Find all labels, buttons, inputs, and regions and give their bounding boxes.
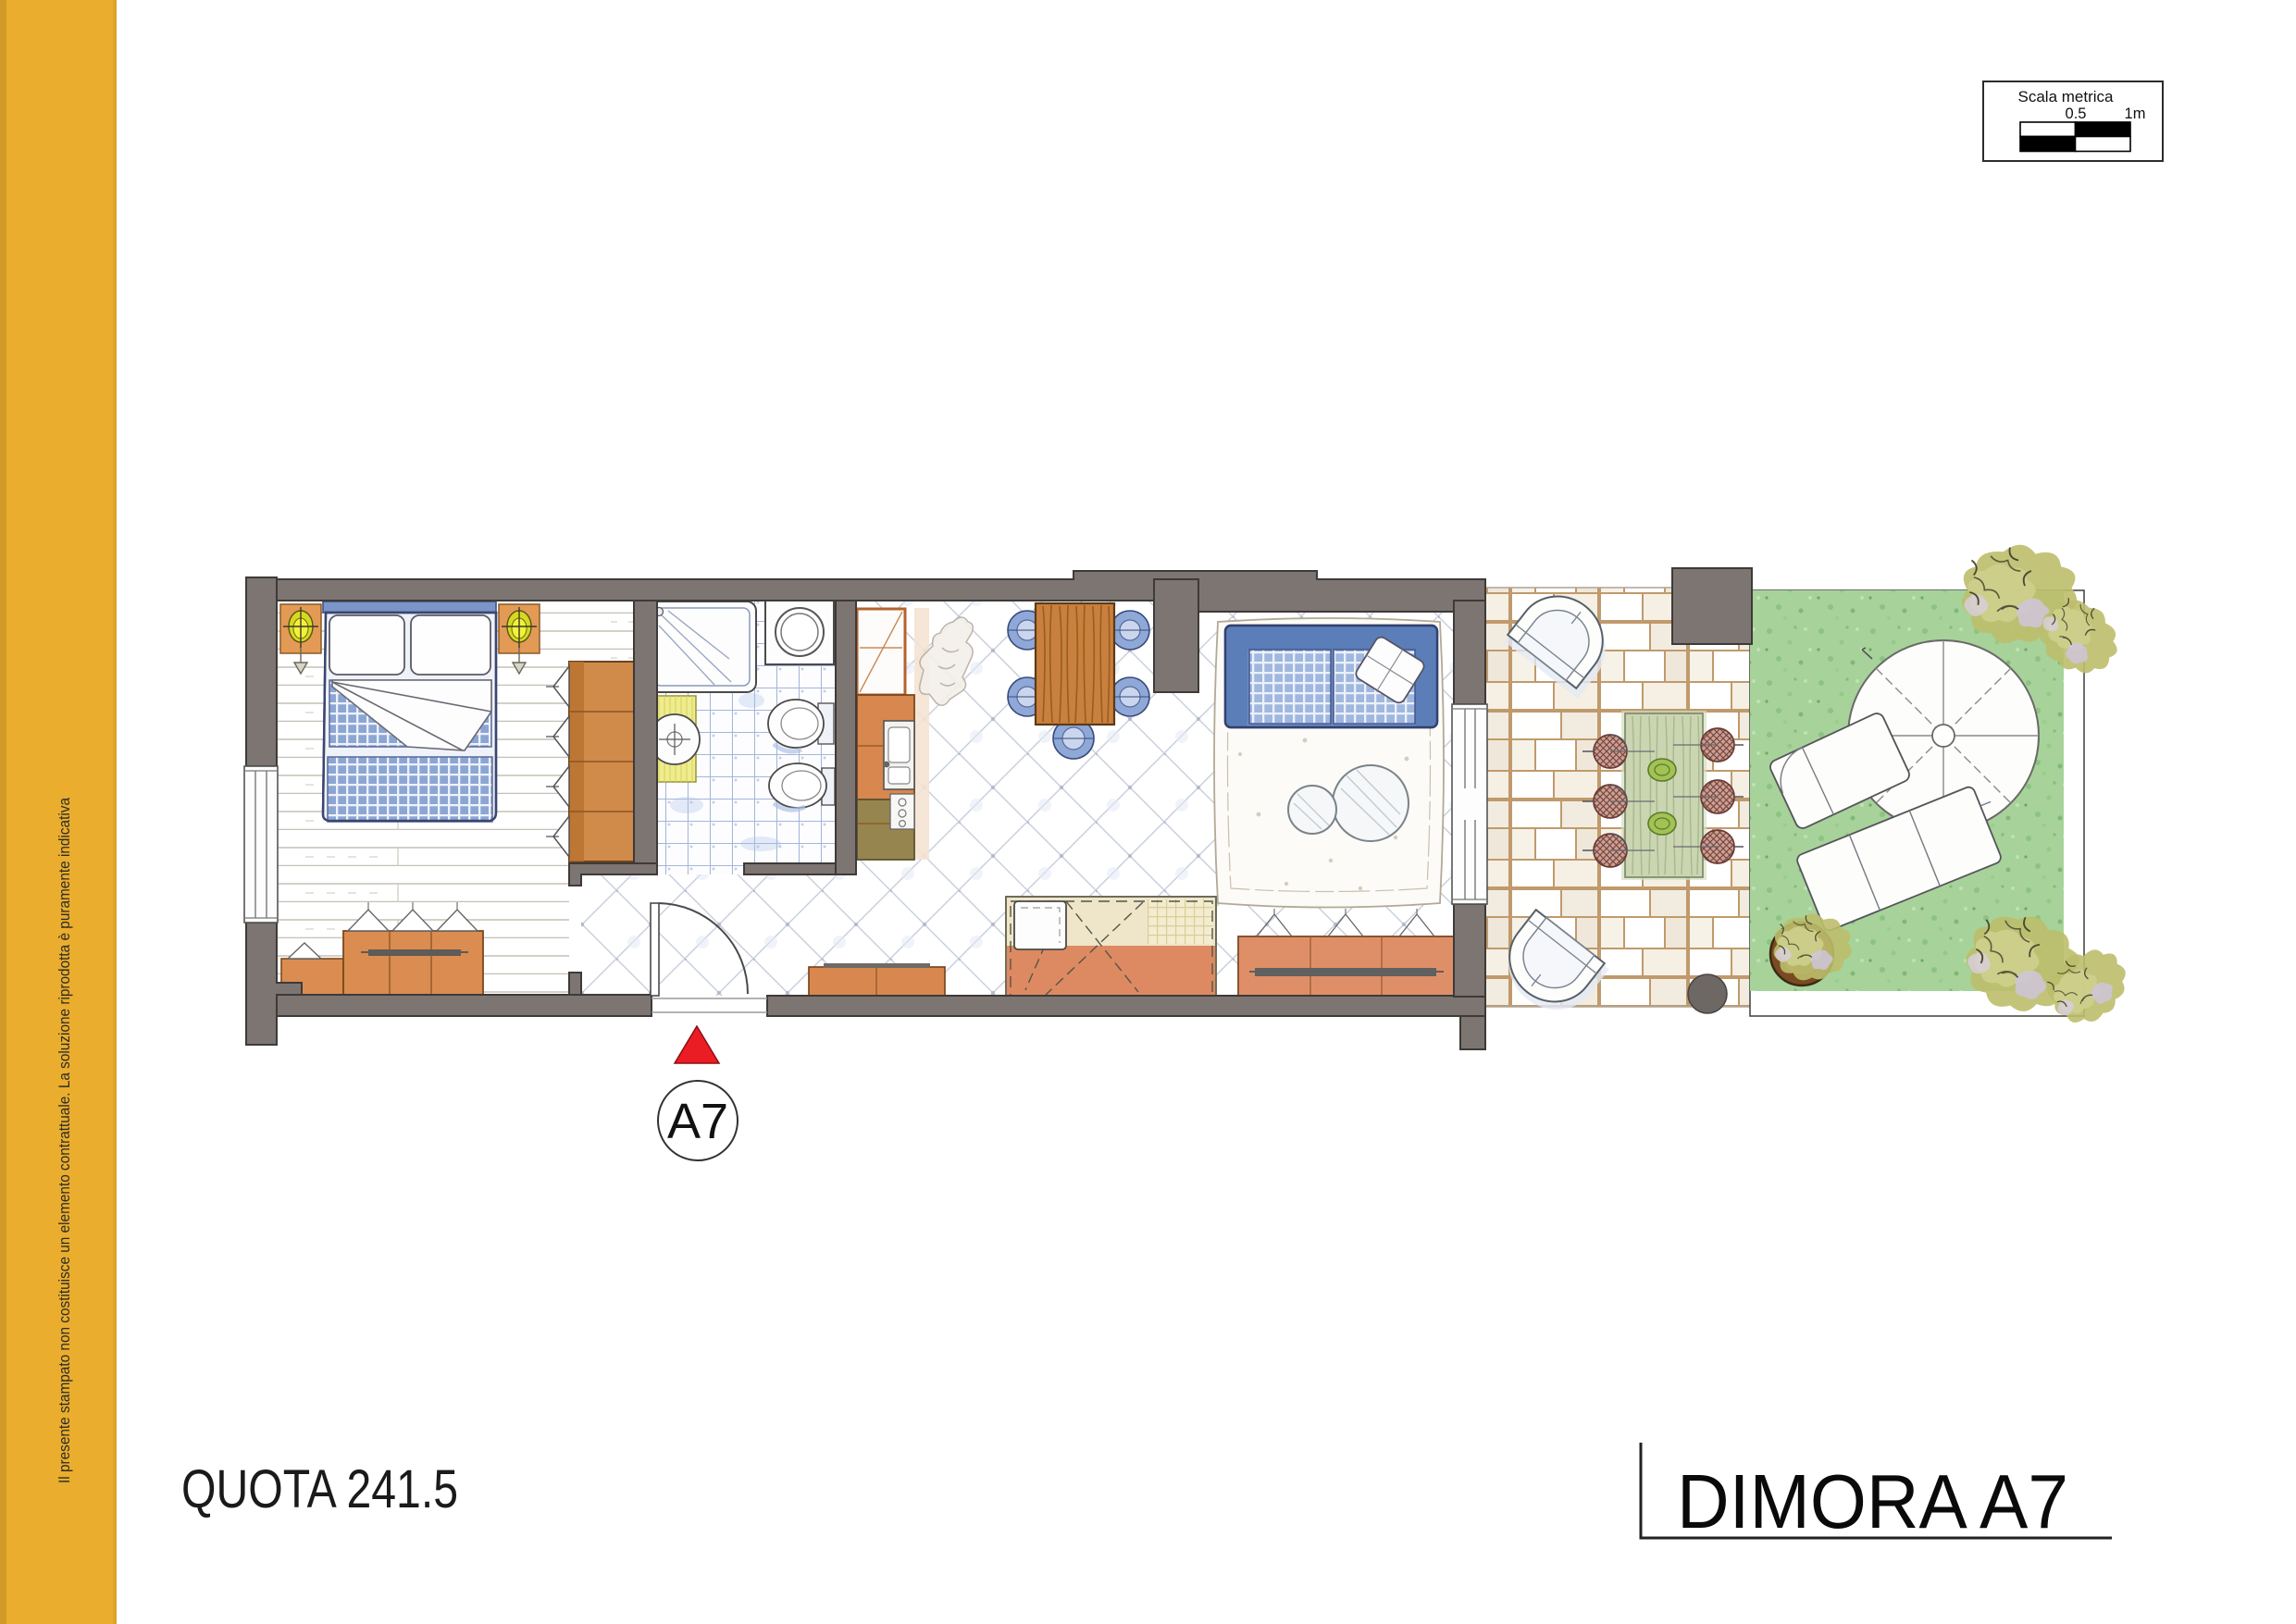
svg-text:1m: 1m xyxy=(2125,105,2146,122)
svg-text:DIMORA A7: DIMORA A7 xyxy=(1677,1458,2068,1544)
svg-text:0.5: 0.5 xyxy=(2066,105,2087,122)
svg-text:A7: A7 xyxy=(667,1094,728,1149)
svg-text:QUOTA 241.5: QUOTA 241.5 xyxy=(181,1459,458,1519)
svg-text:Scala metrica: Scala metrica xyxy=(2018,88,2115,105)
svg-text:Il presente stampato non costi: Il presente stampato non costituisce un … xyxy=(56,798,73,1483)
